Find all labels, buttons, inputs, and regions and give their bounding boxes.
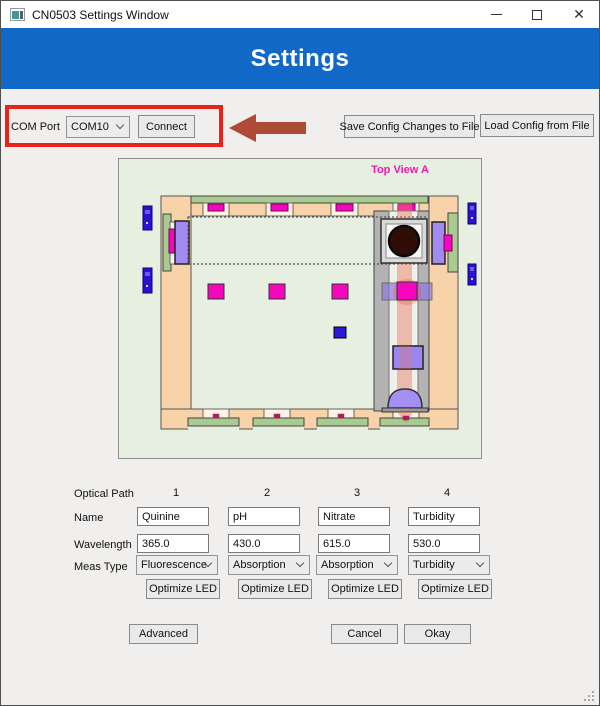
path-number-4: 4: [405, 487, 489, 499]
highlight-arrow-icon: [227, 112, 307, 146]
right-optics: [432, 213, 458, 272]
meas-type-value-2: Absorption: [233, 559, 286, 571]
path-number-2: 2: [225, 487, 309, 499]
sample-vial: [389, 226, 419, 256]
minimize-icon: [491, 14, 502, 15]
wavelength-input-4[interactable]: [408, 534, 480, 553]
okay-button[interactable]: Okay: [404, 624, 471, 644]
app-icon: [10, 8, 25, 21]
wavelength-input-3[interactable]: [318, 534, 390, 553]
name-input-1[interactable]: [137, 507, 209, 526]
meas-type-row-label: Meas Type: [74, 561, 128, 573]
header-banner: Settings: [1, 28, 599, 89]
meas-type-value-3: Absorption: [321, 559, 374, 571]
optical-path-label: Optical Path: [74, 488, 134, 500]
wavelength-row-label: Wavelength: [74, 539, 132, 551]
left-optics: [163, 214, 189, 271]
chevron-down-icon: [476, 559, 484, 567]
blue-component: [334, 327, 346, 338]
settings-window: CN0503 Settings Window ✕ Settings COM Po…: [0, 0, 600, 706]
top-view-label: Top View A: [371, 164, 429, 176]
optimize-led-button-1[interactable]: Optimize LED: [146, 579, 220, 599]
wavelength-input-2[interactable]: [228, 534, 300, 553]
page-title: Settings: [251, 45, 350, 73]
optimize-led-button-2[interactable]: Optimize LED: [238, 579, 312, 599]
meas-type-select-2[interactable]: Absorption: [228, 555, 310, 575]
name-row-label: Name: [74, 512, 103, 524]
close-button[interactable]: ✕: [557, 1, 600, 28]
highlight-rectangle: [5, 105, 223, 147]
title-bar: CN0503 Settings Window ✕: [1, 1, 599, 28]
top-view-diagram: Top View A: [118, 158, 482, 459]
save-config-button[interactable]: Save Config Changes to File: [344, 115, 475, 138]
meas-type-value-1: Fluorescence: [141, 559, 207, 571]
name-input-3[interactable]: [318, 507, 390, 526]
optimize-led-button-3[interactable]: Optimize LED: [328, 579, 402, 599]
resize-grip[interactable]: [582, 689, 594, 701]
path-number-1: 1: [134, 487, 218, 499]
minimize-button[interactable]: [474, 1, 518, 28]
maximize-icon: [532, 10, 542, 20]
load-config-button[interactable]: Load Config from File: [480, 114, 594, 137]
cuvette-holder: [381, 219, 427, 263]
advanced-button[interactable]: Advanced: [129, 624, 198, 644]
top-rail: [191, 196, 428, 203]
meas-type-select-1[interactable]: Fluorescence: [136, 555, 218, 575]
name-input-2[interactable]: [228, 507, 300, 526]
maximize-button[interactable]: [515, 1, 559, 28]
meas-type-value-4: Turbidity: [413, 559, 455, 571]
chevron-down-icon: [384, 559, 392, 567]
name-input-4[interactable]: [408, 507, 480, 526]
optimize-led-button-4[interactable]: Optimize LED: [418, 579, 492, 599]
meas-type-select-3[interactable]: Absorption: [316, 555, 398, 575]
cancel-button[interactable]: Cancel: [331, 624, 398, 644]
optical-filter: [393, 346, 423, 369]
wavelength-input-1[interactable]: [137, 534, 209, 553]
chevron-down-icon: [296, 559, 304, 567]
meas-type-select-4[interactable]: Turbidity: [408, 555, 490, 575]
window-title: CN0503 Settings Window: [32, 8, 169, 22]
path-number-3: 3: [315, 487, 399, 499]
close-icon: ✕: [573, 6, 585, 23]
